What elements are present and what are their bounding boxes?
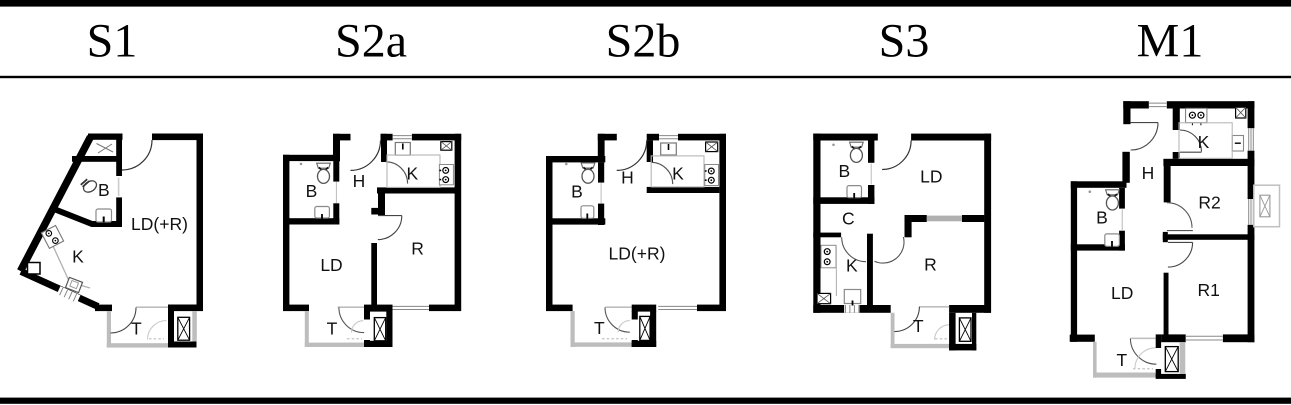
- svg-text:H: H: [353, 171, 366, 191]
- svg-text:H: H: [1142, 163, 1155, 183]
- svg-text:B: B: [838, 161, 850, 181]
- svg-text:S2a: S2a: [335, 15, 407, 68]
- svg-text:B: B: [98, 180, 110, 200]
- svg-text:T: T: [131, 319, 142, 339]
- svg-text:M1: M1: [1137, 15, 1204, 68]
- svg-text:K: K: [672, 164, 684, 184]
- svg-text:T: T: [1116, 350, 1127, 370]
- svg-text:LD(+R): LD(+R): [609, 244, 666, 264]
- svg-text:S2b: S2b: [606, 15, 681, 68]
- svg-text:K: K: [846, 256, 858, 276]
- svg-text:R: R: [924, 254, 937, 274]
- svg-text:H: H: [621, 168, 634, 188]
- svg-text:C: C: [842, 209, 855, 229]
- svg-text:T: T: [594, 318, 605, 338]
- svg-text:B: B: [571, 181, 583, 201]
- svg-text:B: B: [1096, 207, 1108, 227]
- svg-text:R: R: [411, 238, 424, 258]
- svg-text:R1: R1: [1198, 280, 1220, 300]
- svg-text:S3: S3: [879, 15, 930, 68]
- svg-text:T: T: [327, 319, 338, 339]
- svg-text:B: B: [306, 181, 318, 201]
- svg-text:LD(+R): LD(+R): [131, 214, 188, 234]
- svg-text:K: K: [406, 163, 418, 183]
- svg-text:LD: LD: [320, 255, 342, 275]
- svg-text:LD: LD: [920, 166, 942, 186]
- svg-text:K: K: [72, 247, 84, 267]
- svg-text:K: K: [1198, 132, 1210, 152]
- svg-text:T: T: [913, 316, 924, 336]
- svg-text:LD: LD: [1111, 283, 1133, 303]
- svg-text:S1: S1: [87, 15, 138, 68]
- svg-text:R2: R2: [1198, 192, 1220, 212]
